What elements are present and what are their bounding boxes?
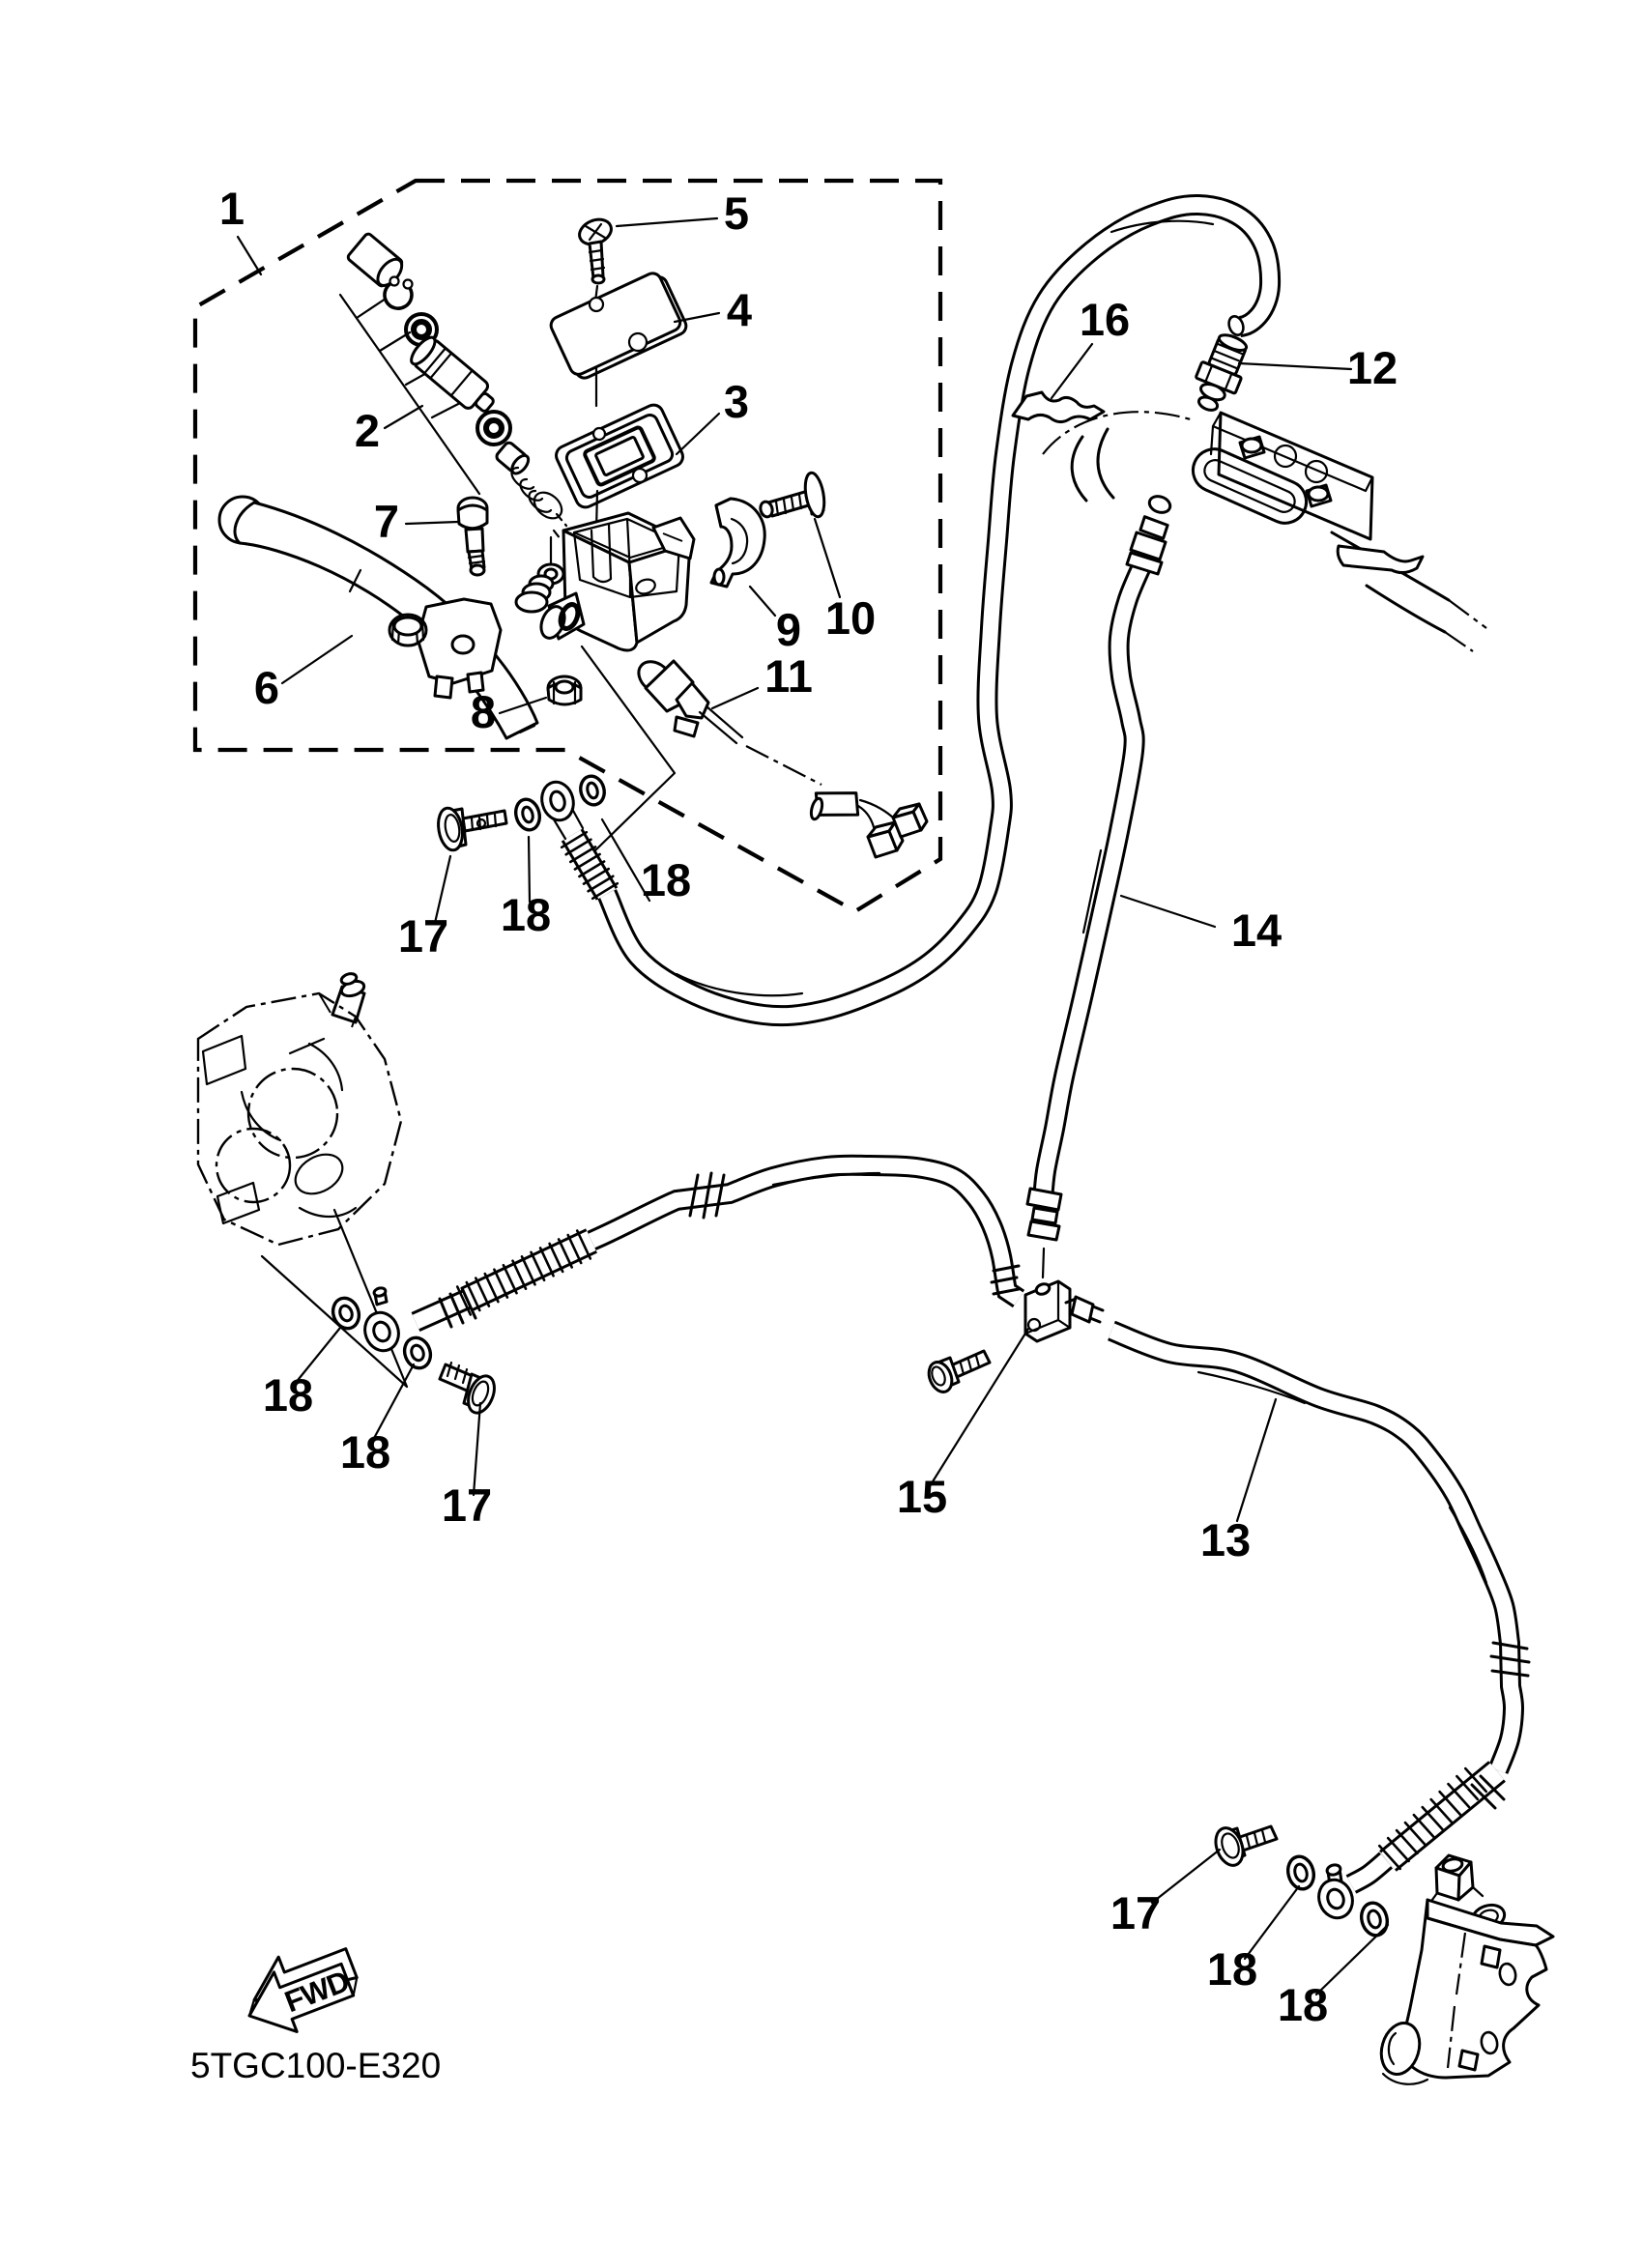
svg-text:17: 17 xyxy=(1110,1887,1161,1938)
svg-text:4: 4 xyxy=(727,284,752,335)
svg-text:5TGC100-E320: 5TGC100-E320 xyxy=(190,2046,441,2085)
svg-text:12: 12 xyxy=(1347,342,1398,393)
svg-text:11: 11 xyxy=(764,650,813,702)
svg-text:17: 17 xyxy=(442,1479,492,1531)
svg-text:8: 8 xyxy=(471,686,496,737)
svg-text:18: 18 xyxy=(501,889,551,940)
svg-text:9: 9 xyxy=(776,604,801,655)
svg-text:10: 10 xyxy=(825,592,876,644)
svg-text:14: 14 xyxy=(1231,904,1282,956)
svg-text:7: 7 xyxy=(374,496,399,547)
svg-text:17: 17 xyxy=(398,910,448,962)
svg-text:16: 16 xyxy=(1080,294,1130,345)
svg-text:18: 18 xyxy=(263,1369,313,1421)
svg-text:18: 18 xyxy=(340,1426,390,1478)
svg-text:2: 2 xyxy=(355,405,380,456)
svg-text:6: 6 xyxy=(254,662,279,713)
svg-text:3: 3 xyxy=(724,376,749,427)
svg-text:1: 1 xyxy=(219,183,245,234)
svg-text:15: 15 xyxy=(897,1471,947,1522)
svg-text:5: 5 xyxy=(724,187,749,239)
svg-text:13: 13 xyxy=(1200,1514,1251,1565)
svg-text:18: 18 xyxy=(1278,1979,1328,2030)
